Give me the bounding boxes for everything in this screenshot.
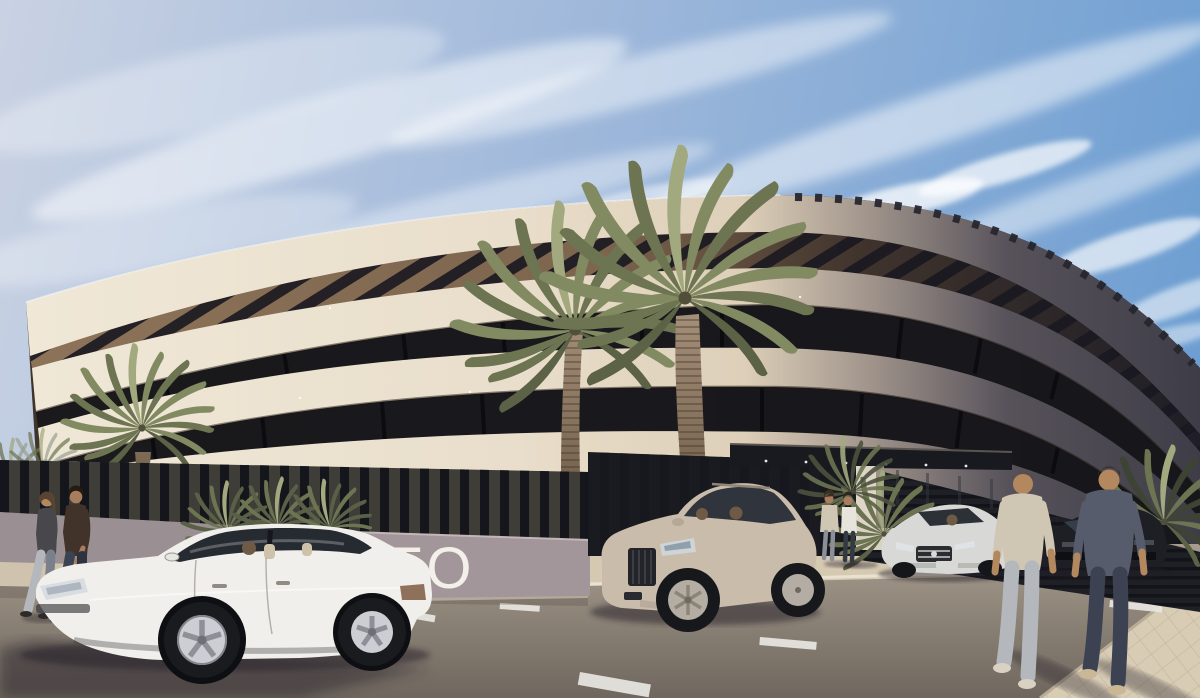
architectural-render-scene: TO bbox=[0, 0, 1200, 698]
headrest bbox=[264, 544, 275, 559]
torso bbox=[1084, 490, 1135, 577]
jacket bbox=[820, 505, 839, 532]
headrest bbox=[302, 543, 312, 556]
shirt bbox=[841, 507, 857, 533]
driver-head bbox=[242, 541, 256, 555]
driver-head bbox=[730, 507, 743, 520]
taillight bbox=[400, 584, 426, 600]
front-wheel bbox=[656, 568, 720, 632]
rear-wheel bbox=[333, 593, 411, 671]
passenger-head bbox=[696, 508, 708, 520]
mirror bbox=[672, 518, 684, 526]
render-viewport: TO bbox=[0, 0, 1200, 698]
front-wheel bbox=[158, 596, 246, 684]
mirror bbox=[165, 553, 179, 561]
rear-wheel bbox=[771, 563, 825, 617]
driver-head bbox=[947, 515, 958, 526]
